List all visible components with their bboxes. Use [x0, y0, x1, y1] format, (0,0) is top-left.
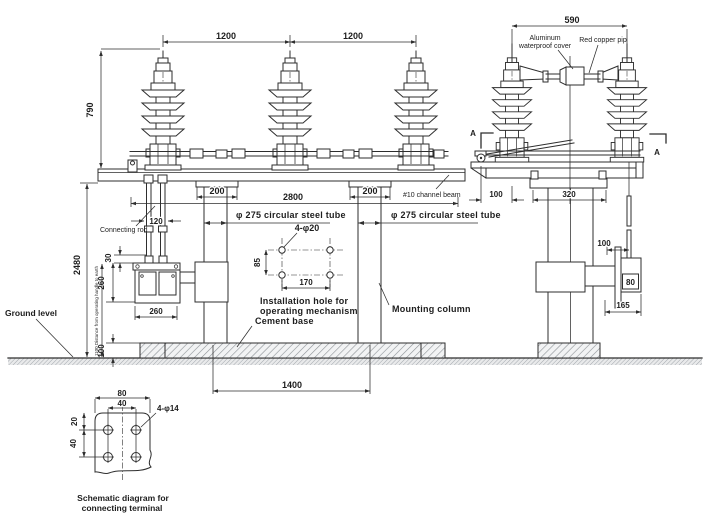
dim-text-320: 320	[562, 190, 576, 199]
cement-base-front	[140, 343, 445, 358]
dim-rod-gap: 120	[131, 217, 181, 226]
channel-beam-text: #10 channel beam	[403, 192, 461, 199]
dim-cap-right: 200	[350, 186, 390, 200]
mounting-column-text: Mounting column	[392, 304, 471, 314]
dim-text-1200-right: 1200	[343, 31, 363, 41]
label-steel-tube-left: φ 275 circular steel tube	[204, 210, 346, 225]
dim-span-left: 1200	[163, 31, 290, 47]
steel-tube-left-text: φ 275 circular steel tube	[236, 210, 346, 220]
steel-tube-right-text: φ 275 circular steel tube	[391, 210, 501, 220]
dim-text-100-rod: 100	[597, 239, 611, 248]
dim-text-1200-left: 1200	[216, 31, 236, 41]
dim-text-80-box: 80	[626, 278, 635, 287]
dim-text-170: 170	[299, 278, 313, 287]
rotating-table	[471, 158, 643, 188]
ground-level-text: Ground level	[5, 308, 57, 318]
section-a-left-text: A	[470, 129, 476, 138]
dim-mech-width: 260	[135, 306, 177, 320]
ground	[8, 358, 702, 365]
aluminum-cover-text-1: Aluminum	[529, 35, 560, 42]
right-column	[349, 181, 391, 343]
section-a-right-text: A	[654, 148, 660, 157]
dim-text-790: 790	[85, 102, 95, 117]
dim-text-200-right: 200	[362, 186, 377, 196]
insulator-front-3	[395, 51, 437, 170]
dim-text-120: 120	[149, 217, 163, 226]
dim-text-20: 20	[70, 417, 79, 426]
aluminum-cover-text-2: waterproof cover	[518, 43, 572, 50]
dim-text-1400: 1400	[282, 380, 302, 390]
label-cement-base: Cement base	[237, 316, 314, 347]
install-hole-detail: 85 170 4-φ20	[253, 223, 344, 291]
dim-cap-left: 200	[197, 186, 237, 200]
drawing-page: 1200 1200 790 200 200 2	[0, 0, 710, 518]
section-marker-right: A	[650, 134, 666, 157]
dim-text-2480: 2480	[72, 255, 82, 275]
dim-rod-offset-side: 100	[597, 239, 629, 255]
label-aluminum-cover: Aluminum waterproof cover	[518, 35, 573, 69]
dim-text-100-left: 100	[489, 190, 503, 199]
operating-mechanism-front	[133, 262, 228, 303]
connecting-rod-text: Connecting rod	[100, 227, 148, 234]
label-red-copper-pipe: Red copper pip	[579, 37, 627, 73]
label-install-hole: Installation hole for operating mechanis…	[260, 296, 358, 316]
dim-text-30: 30	[104, 253, 113, 262]
dim-mech-height: 260	[97, 263, 135, 302]
dim-span-right: 1200	[290, 31, 416, 47]
dim-text-80-plate: 80	[118, 389, 127, 398]
dim-text-165: 165	[616, 301, 630, 310]
red-copper-text: Red copper pip	[579, 37, 627, 44]
label-mounting-column: Mounting column	[379, 283, 471, 314]
caption-text-2: connecting terminal	[82, 503, 163, 513]
side-view: 590 Aluminum waterproof cover Red copper…	[469, 15, 666, 358]
cement-base-text: Cement base	[255, 316, 314, 326]
dim-text-40-left: 40	[69, 439, 78, 448]
section-marker-left: A	[470, 129, 493, 148]
dim-text-260-h: 260	[149, 307, 163, 316]
cement-base-side	[538, 343, 600, 358]
label-ground-level: Ground level	[5, 308, 73, 357]
terminal-schematic: 80 40 4-φ14 20 40 Schematic diagram for …	[69, 389, 179, 513]
handle-distance-text: 1100 Distance from operating handle to e…	[94, 266, 99, 356]
install-hole-text-2: operating mechanism	[260, 306, 358, 316]
insulator-front-2	[269, 51, 311, 170]
dim-mech-width-side: 165	[605, 294, 641, 316]
install-hole-text-1: Installation hole for	[260, 296, 349, 306]
engineering-drawing: 1200 1200 790 200 200 2	[0, 0, 710, 518]
front-view: 1200 1200 790 200 200 2	[5, 31, 501, 394]
dim-text-2800: 2800	[283, 192, 303, 202]
dim-text-40-top: 40	[118, 399, 127, 408]
hole-count-text: 4-φ20	[295, 223, 319, 233]
dim-text-85: 85	[253, 258, 262, 267]
caption-text-1: Schematic diagram for	[77, 493, 169, 503]
schematic-caption: Schematic diagram for connecting termina…	[77, 493, 169, 513]
dim-text-590: 590	[564, 15, 579, 25]
dim-text-200-left: 200	[209, 186, 224, 196]
insulator-front-1	[142, 51, 184, 170]
dim-pedestal-width: 320	[533, 190, 606, 203]
label-steel-tube-right: φ 275 circular steel tube	[358, 210, 501, 225]
terminal-holes-text: 4-φ14	[157, 404, 179, 413]
terminal-plate	[95, 405, 151, 480]
